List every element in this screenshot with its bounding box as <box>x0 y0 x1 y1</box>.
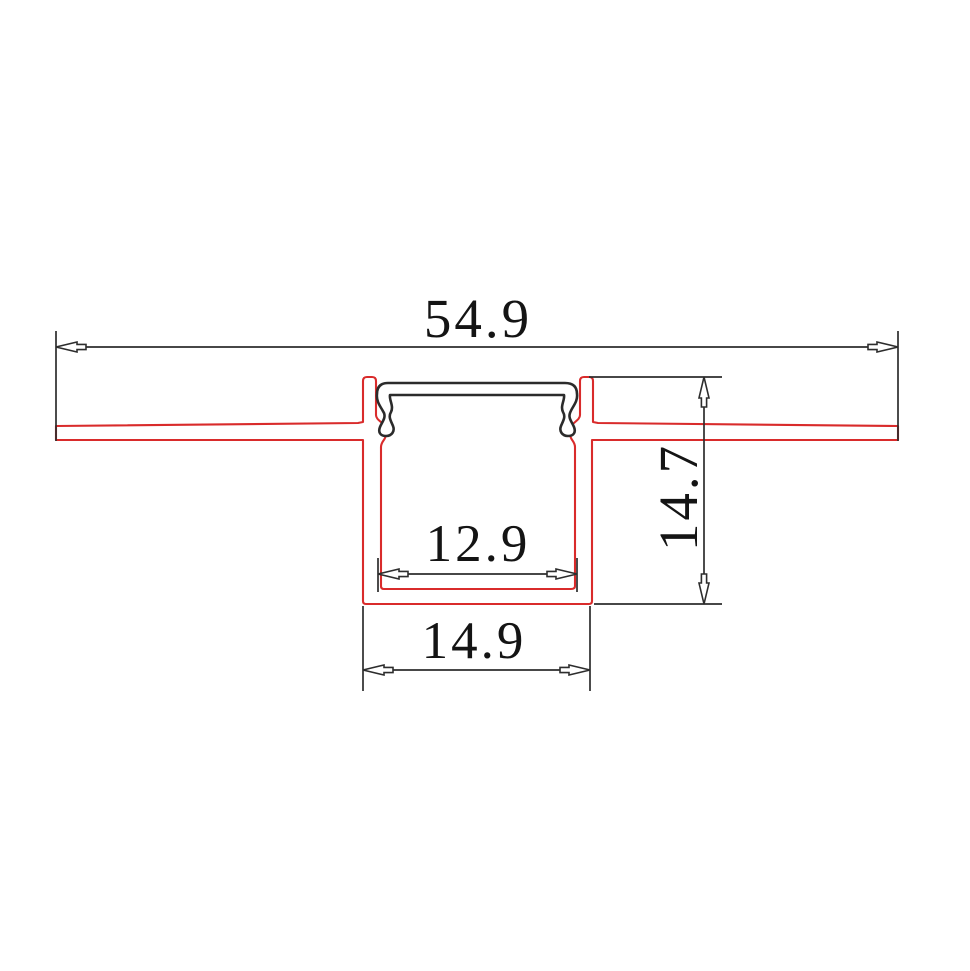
profile-drawing-svg: 54.9 14.7 12.9 14.9 <box>0 0 970 971</box>
arrowhead-top <box>699 377 709 407</box>
technical-drawing-canvas: 54.9 14.7 12.9 14.9 <box>0 0 970 971</box>
dimension-label-outer-width: 14.9 <box>422 612 527 670</box>
arrowhead-right <box>868 342 898 352</box>
diffuser-cover-outline <box>377 383 577 436</box>
dimension-outer-width: 14.9 <box>363 606 590 691</box>
dimension-label-inner-width: 12.9 <box>426 515 531 573</box>
dimension-overall-width: 54.9 <box>56 288 898 441</box>
cover-path <box>377 383 577 436</box>
arrowhead-left <box>378 569 408 579</box>
arrowhead-right <box>560 665 590 675</box>
dimension-inner-width: 12.9 <box>378 515 577 592</box>
dimension-profile-height: 14.7 <box>589 377 722 604</box>
arrowhead-right <box>547 569 577 579</box>
dimension-label-profile-height: 14.7 <box>648 443 709 551</box>
dimension-label-overall-width: 54.9 <box>424 288 532 349</box>
arrowhead-left <box>363 665 393 675</box>
arrowhead-left <box>56 342 86 352</box>
arrowhead-bottom <box>699 574 709 604</box>
